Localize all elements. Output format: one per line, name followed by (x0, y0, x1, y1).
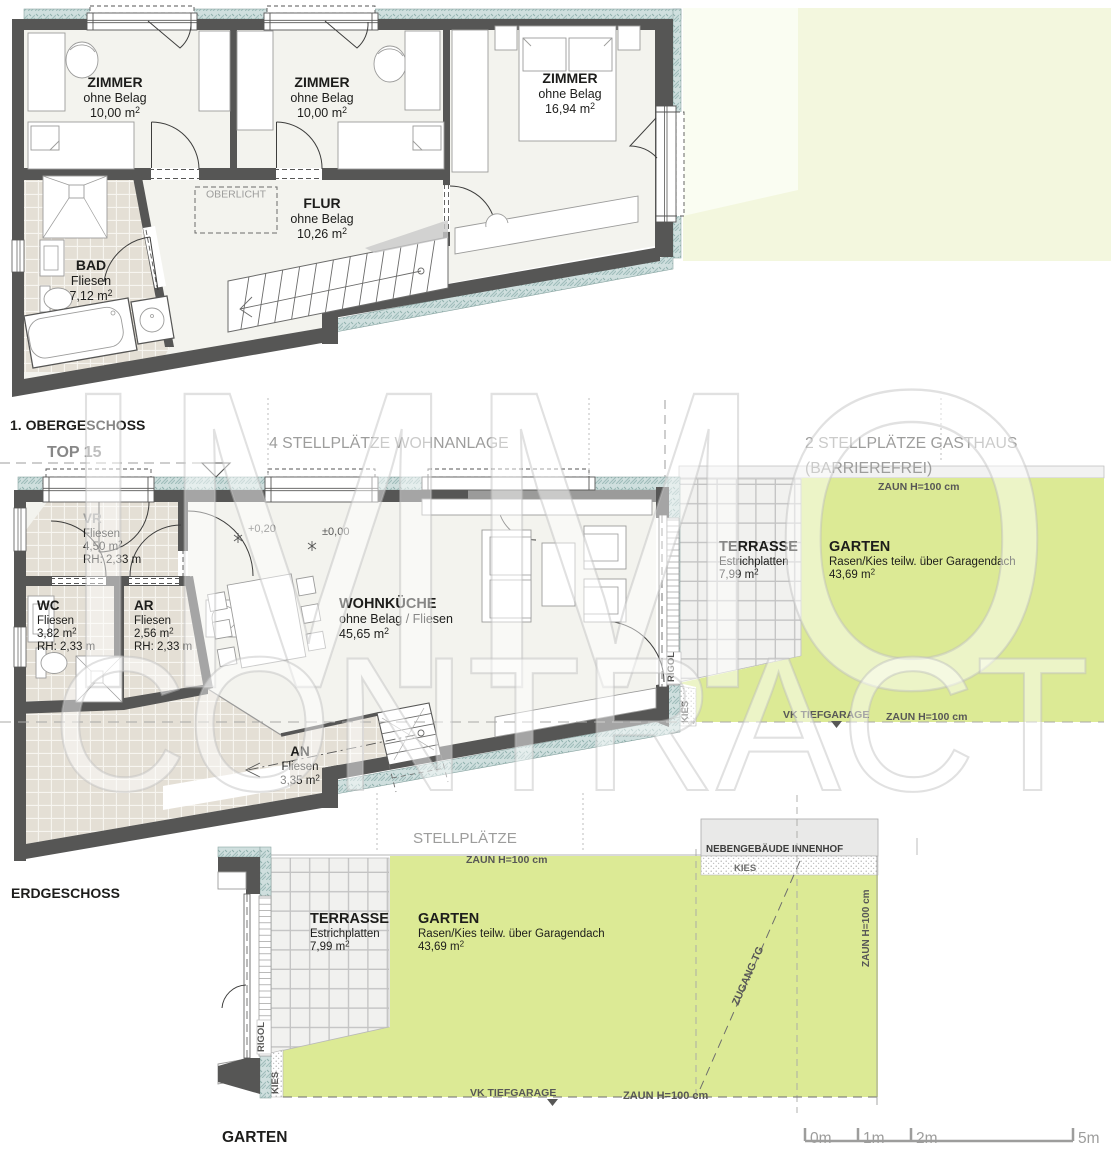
svg-text:RIGOL: RIGOL (256, 1022, 267, 1052)
svg-text:10,00 m2: 10,00 m2 (90, 105, 140, 120)
svg-text:2m: 2m (916, 1130, 938, 1147)
svg-text:STELLPLÄTZE: STELLPLÄTZE (413, 830, 517, 847)
svg-text:ohne Belag: ohne Belag (290, 91, 353, 105)
svg-text:ohne Belag: ohne Belag (538, 87, 601, 101)
svg-text:NEBENGEBÄUDE INNENHOF: NEBENGEBÄUDE INNENHOF (706, 844, 843, 855)
svg-text:43,69 m2: 43,69 m2 (418, 939, 465, 953)
svg-text:Fliesen: Fliesen (71, 274, 111, 288)
svg-text:CONTRACT: CONTRACT (52, 618, 1090, 831)
svg-text:TERRASSE: TERRASSE (310, 911, 389, 927)
svg-text:10,26 m2: 10,26 m2 (297, 226, 347, 241)
svg-text:ZIMMER: ZIMMER (294, 74, 349, 90)
svg-text:0m: 0m (810, 1130, 832, 1147)
svg-text:ZIMMER: ZIMMER (542, 70, 597, 86)
svg-text:BAD: BAD (76, 257, 106, 273)
svg-text:ohne Belag: ohne Belag (290, 212, 353, 226)
svg-text:KIES: KIES (734, 863, 756, 874)
svg-text:GARTEN: GARTEN (222, 1129, 287, 1146)
svg-text:KIES: KIES (270, 1072, 281, 1094)
svg-text:OBERLICHT: OBERLICHT (206, 189, 267, 201)
svg-text:Rasen/Kies teilw. über Garagen: Rasen/Kies teilw. über Garagendach (418, 928, 605, 940)
svg-text:5m: 5m (1078, 1130, 1100, 1147)
svg-text:1m: 1m (863, 1130, 885, 1147)
svg-text:ZIMMER: ZIMMER (87, 74, 142, 90)
svg-text:Estrichplatten: Estrichplatten (310, 928, 380, 940)
svg-text:ZAUN H=100 cm: ZAUN H=100 cm (466, 854, 547, 866)
svg-text:10,00 m2: 10,00 m2 (297, 105, 347, 120)
svg-text:ERDGESCHOSS: ERDGESCHOSS (11, 885, 120, 901)
svg-text:7,12 m2: 7,12 m2 (69, 288, 112, 303)
svg-text:ZAUN H=100 cm: ZAUN H=100 cm (623, 1090, 709, 1102)
svg-text:16,94 m2: 16,94 m2 (545, 101, 595, 116)
svg-text:GARTEN: GARTEN (418, 911, 479, 927)
svg-text:ZAUN H=100 cm: ZAUN H=100 cm (861, 889, 872, 967)
svg-text:7,99 m2: 7,99 m2 (310, 939, 350, 953)
svg-text:FLUR: FLUR (303, 195, 340, 211)
svg-text:ohne Belag: ohne Belag (83, 91, 146, 105)
svg-text:VK TIEFGARAGE: VK TIEFGARAGE (470, 1087, 556, 1099)
